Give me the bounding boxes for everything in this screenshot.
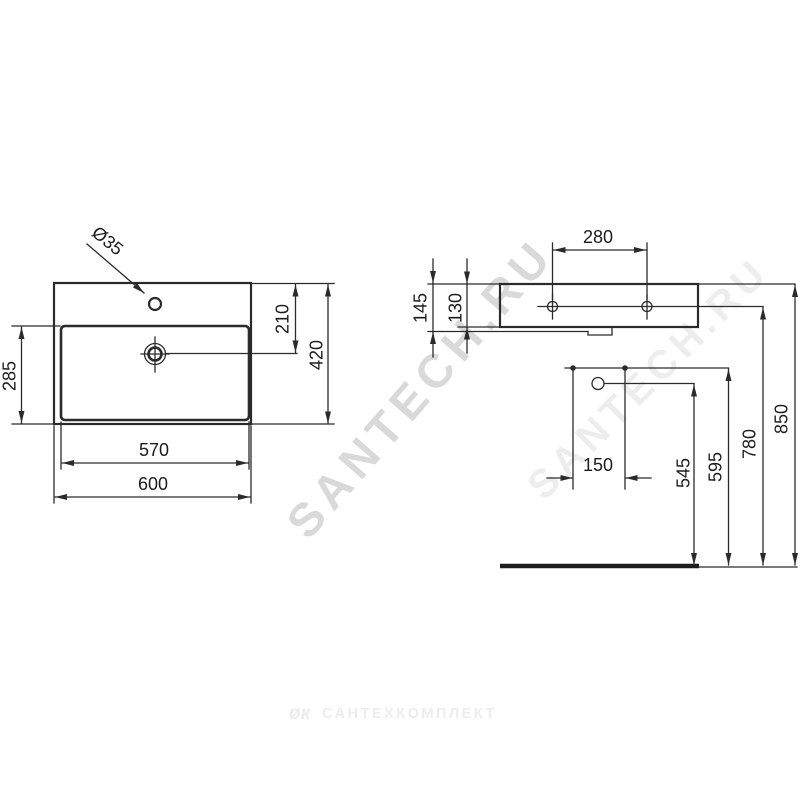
dim-label-145: 145 [410, 293, 430, 323]
dimension-545: 545 [673, 385, 694, 566]
dimension-285: 285 [0, 327, 22, 423]
technical-drawing-page: SANTECH.RU SANTECH.RU 210 420 [0, 0, 800, 800]
footer-brand-text: САНТЕХКОМПЛЕКТ [322, 706, 497, 722]
footer-logo-icon: øк [289, 703, 312, 724]
watermark-primary: SANTECH.RU [276, 228, 564, 548]
dim-label-285: 285 [0, 361, 19, 391]
tap-hole [149, 298, 161, 310]
washbasin-dimension-drawing: SANTECH.RU SANTECH.RU 210 420 [0, 0, 800, 800]
dim-label-280: 280 [583, 227, 613, 247]
dimension-595: 595 [705, 369, 728, 565]
dim-label-570: 570 [139, 440, 169, 460]
dim-label-210: 210 [272, 304, 292, 334]
drain-hole [141, 337, 169, 372]
dimension-850: 850 [771, 285, 795, 565]
dim-label-d35: Ø35 [88, 222, 127, 259]
front-view: 210 420 285 570 600 Ø35 [0, 222, 334, 503]
drain-notch [588, 327, 612, 335]
dim-label-780: 780 [739, 429, 759, 459]
dim-label-150: 150 [583, 455, 613, 475]
dimension-570: 570 [62, 440, 248, 463]
dim-label-420: 420 [306, 340, 326, 370]
watermark-secondary: SANTECH.RU [519, 249, 778, 508]
dimension-280: 280 [553, 227, 648, 299]
dim-label-850: 850 [771, 404, 791, 434]
dimension-600: 600 [55, 474, 250, 497]
dimension-420: 420 [306, 285, 328, 424]
dim-label-595: 595 [705, 452, 725, 482]
dim-label-600: 600 [138, 474, 168, 494]
dim-label-130: 130 [445, 293, 465, 323]
waste-outlet [592, 378, 604, 390]
dimension-210: 210 [272, 285, 295, 353]
footer-brand: øк САНТЕХКОМПЛЕКТ [289, 703, 497, 724]
dimension-780: 780 [739, 308, 763, 566]
watermark: SANTECH.RU SANTECH.RU [276, 228, 778, 548]
dim-label-545: 545 [673, 458, 693, 488]
